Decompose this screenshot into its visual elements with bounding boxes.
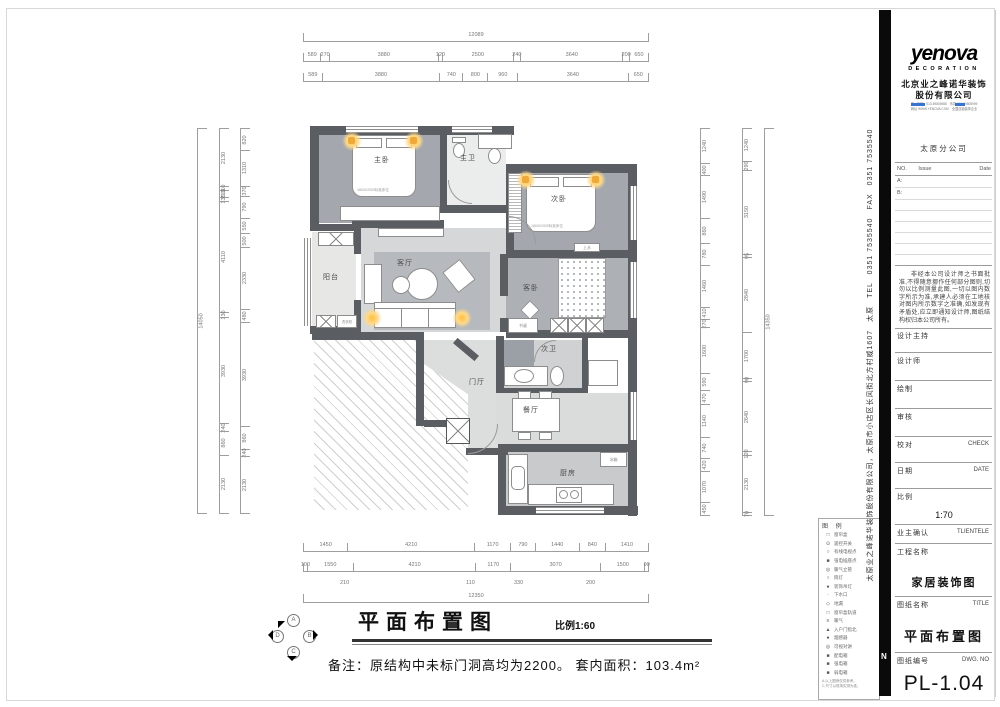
legend-item-label: 地漏 — [834, 601, 843, 607]
burner — [570, 490, 579, 499]
nightstand — [348, 137, 355, 144]
bath-cabinet — [478, 134, 512, 149]
nightstand — [410, 137, 417, 144]
dimension-segment: 780 — [701, 243, 710, 266]
chair — [539, 391, 552, 399]
wall — [312, 332, 424, 340]
wall — [496, 336, 504, 392]
dimension-segment: 270 — [320, 53, 329, 62]
fine-print-highlight — [911, 103, 925, 106]
dimension-value: 2840 — [743, 289, 749, 301]
dimension-value: 2130 — [743, 478, 749, 490]
sofa — [374, 302, 456, 328]
dimension-value: 420 — [702, 460, 708, 469]
field-client: 业主确认 — [897, 528, 929, 538]
dimension-value: 1070 — [701, 481, 707, 493]
dimension-segment: 1170 — [474, 543, 510, 552]
window — [304, 238, 311, 326]
master-wardrobe — [340, 206, 440, 221]
legend-symbol-icon: ◇ — [822, 601, 834, 607]
revision-row-b: B: — [897, 190, 991, 196]
dimension-value: 860 — [242, 433, 248, 442]
dimension-chain: 1240400149086078014604102701600590470114… — [700, 128, 710, 516]
legend-symbol-icon: ■ — [822, 670, 834, 676]
legend-item-label: 窗帘盒 — [834, 532, 848, 538]
room-label-guest: 客卧 — [523, 283, 539, 293]
dimension-value: 800 — [471, 72, 480, 78]
legend-symbol-icon: ○ — [822, 575, 834, 581]
dimension-segment: 410 — [701, 307, 710, 319]
chair — [539, 432, 552, 440]
sofa-divider — [401, 308, 402, 328]
wall — [440, 132, 447, 210]
dimension-value: 2500 — [472, 52, 484, 58]
room-label-master-bath: 主卫 — [460, 153, 476, 163]
dimension-segment: 370 — [241, 186, 250, 197]
wall — [500, 318, 508, 332]
dimension-segment: 450 — [701, 502, 710, 516]
room-label-kitchen: 厨房 — [560, 468, 576, 478]
legend-item-label: 配电箱 — [834, 653, 848, 659]
dimension-segment: 2640 — [743, 381, 752, 451]
legend-item-label: 遥控开关 — [834, 541, 852, 547]
dimension-segment: 240 — [241, 449, 250, 456]
field-sheet-name: 图纸名称 — [897, 600, 929, 610]
room-label-bed2: 次卧 — [551, 194, 567, 204]
window — [452, 126, 492, 133]
dimension-chain: 8201310370790550500233048039308602402130 — [240, 128, 250, 514]
legend-item-label: 窗帘盒轨道 — [834, 610, 857, 616]
dimension-value: 1500 — [617, 562, 629, 568]
dimension-segment: 790 — [510, 543, 535, 552]
nightstand — [522, 176, 529, 183]
title-block: yenova DECORATION 北京业之峰诺华装饰 股份有限公司 电（总机）… — [893, 10, 996, 697]
window — [630, 186, 637, 240]
dimension-value: 400 — [702, 165, 708, 174]
dimension-segment: 1310 — [241, 150, 250, 185]
field-dwg-no: 图纸编号 — [897, 656, 929, 666]
legend-symbol-icon: ● — [822, 584, 834, 590]
dimension-value: 790 — [242, 203, 248, 212]
dimension-value: 2130 — [241, 479, 247, 491]
field-sheet-en: TITLE — [973, 601, 989, 607]
title-block-black-bar — [879, 10, 891, 696]
field-designer: 设计师 — [897, 356, 921, 366]
legend-item-label: 暖气立管 — [834, 567, 852, 573]
tatami-platform — [558, 258, 606, 318]
dimension-segment: 860 — [701, 218, 710, 243]
dimension-segment: 14350 — [765, 128, 774, 516]
sofa-divider — [428, 308, 429, 328]
wall — [506, 250, 636, 258]
bath2-sink — [514, 369, 534, 383]
yenova-logo-sub: DECORATION — [893, 66, 995, 72]
dimension-segment: 740 — [701, 437, 710, 459]
dimension-segment: 589 — [303, 53, 320, 62]
legend-symbol-icon: ⊙ — [822, 541, 834, 547]
dimension-segment: 860 — [241, 426, 250, 449]
dimension-segment: 650 — [628, 73, 650, 82]
legend-notes: A.以上图例仅供参考。C.尺寸以现场实测为准。 — [822, 679, 876, 688]
dimension-segment: 12350 — [303, 594, 649, 603]
storage-cabinet — [550, 318, 568, 333]
dimension-value: 3880 — [375, 72, 387, 78]
legend-symbol-icon: □ — [822, 532, 834, 538]
legend-item-label: 暖气 — [834, 618, 843, 624]
dimension-value: 1550 — [324, 562, 336, 568]
legend-symbol-icon: ◎ — [822, 567, 834, 573]
dimension-segment: 1070 — [701, 471, 710, 502]
legend-item-label: 装饰吊灯 — [834, 584, 852, 590]
revision-row-a: A: — [897, 178, 991, 184]
field-date: 日期 — [897, 466, 913, 476]
dimension-segment: 4210 — [353, 563, 476, 572]
dimension-segment: 270 — [701, 319, 710, 327]
floor-lamp-glow — [362, 308, 382, 328]
dimension-segment: 500 — [241, 233, 250, 247]
legend-symbol-icon: ○ — [822, 549, 834, 555]
dining-table — [512, 398, 560, 432]
compass-arrow-east — [313, 630, 323, 640]
dimension-value: 70 — [744, 511, 750, 517]
dimension-value: 2130 — [220, 151, 226, 163]
dimension-value: 2330 — [241, 272, 247, 284]
dimension-chain: 58938807408009603640650 — [303, 73, 649, 82]
dimension-value: 650 — [634, 52, 643, 58]
sofa-backrest-line — [374, 308, 456, 309]
dimension-segment: 1550 — [307, 563, 353, 572]
legend-item-label: 弱电箱 — [834, 670, 848, 676]
dimension-value: 790 — [518, 542, 527, 548]
wall — [440, 205, 514, 213]
dimension-segment: 290 — [743, 161, 752, 170]
wall — [498, 450, 506, 512]
shower-area — [504, 340, 534, 366]
dimension-value: 2640 — [743, 411, 749, 423]
project-name: 家居装饰图 — [893, 574, 995, 590]
dimension-segment: 1410 — [605, 543, 649, 552]
dimension-segment: 2840 — [743, 257, 752, 332]
dimension-value: 3150 — [743, 206, 749, 218]
rev-date: Date — [979, 166, 991, 172]
dimension-segment: 4110 — [220, 201, 229, 312]
legend-item: ■强电箱 — [822, 660, 876, 669]
legend-item-label: 筒灯 — [834, 575, 843, 581]
storage-cabinet — [568, 318, 586, 333]
dimension-value: 370 — [242, 187, 248, 196]
company-side-text: 太原业之峰诺华装饰股份有限公司，太原市小店区长风街北方村威1607 太原 TEL… — [865, 55, 875, 655]
tv-cabinet — [378, 228, 444, 237]
dimension-value: 1240 — [743, 139, 749, 151]
kitchen-sink — [511, 466, 525, 490]
dimension-value: 12350 — [468, 593, 483, 599]
dimension-chain: 12089 — [303, 33, 649, 42]
dimension-segment: 12089 — [303, 33, 649, 42]
dimension-value: 3930 — [241, 368, 247, 380]
dimension-callout: 200 — [586, 580, 595, 586]
dimension-segment: 960 — [487, 73, 517, 82]
dimension-segment: 2130 — [241, 456, 250, 514]
dimension-callout: 110 — [466, 580, 475, 586]
dimension-segment: 3880 — [322, 73, 439, 82]
balcony-cabinet — [318, 232, 354, 246]
dimension-segment: 1140 — [701, 404, 710, 437]
dimension-value: 1170 — [487, 542, 499, 548]
dimension-value: 1450 — [320, 542, 332, 548]
closet-washer — [588, 360, 618, 386]
dimension-value: 1460 — [701, 280, 707, 292]
window — [536, 507, 604, 514]
wall — [310, 126, 319, 230]
dimension-chain: 14504210117079014408401410 — [303, 543, 649, 552]
dimension-value: 650 — [634, 72, 643, 78]
dimension-value: 1410 — [621, 542, 633, 548]
wall — [354, 226, 361, 254]
dimension-value: 90 — [644, 562, 650, 568]
legend-item: ■弱电箱 — [822, 669, 876, 678]
dimension-segment: 14050 — [198, 128, 207, 514]
dimension-segment: 550 — [241, 218, 250, 233]
dimension-value: 12089 — [468, 32, 483, 38]
drawing-scale: 比例1:60 — [555, 617, 595, 632]
legend-symbol-icon: ■ — [822, 558, 834, 564]
dimension-segment: 1700 — [743, 332, 752, 378]
dimension-segment: 589 — [303, 73, 322, 82]
field-scale: 比例 — [897, 492, 913, 502]
dimension-chain: 14350 — [764, 128, 774, 516]
legend-item-label: 下水口 — [834, 592, 848, 598]
dimension-segment: 800 — [462, 73, 487, 82]
room-label-balcony: 阳台 — [323, 272, 339, 282]
burner — [559, 490, 568, 499]
dimension-segment: 2130 — [743, 455, 752, 512]
dimension-value: 1700 — [743, 349, 749, 361]
coffee-table-small — [392, 276, 410, 294]
chair — [518, 391, 531, 399]
washer-label-box: 洗衣机 — [337, 315, 357, 328]
fine-print-highlight — [955, 103, 965, 106]
dimension-value: 960 — [498, 72, 507, 78]
dimension-value: 4210 — [405, 542, 417, 548]
dimension-value: 4110 — [220, 251, 226, 263]
yenova-logo: yenova — [893, 42, 995, 66]
dimension-segment: 1170 — [475, 563, 510, 572]
dimension-segment: 1240 — [743, 128, 752, 161]
compass-arrow-west — [263, 630, 273, 640]
drawing-number: PL-1.04 — [893, 672, 995, 696]
dimension-segment: 3150 — [743, 170, 752, 253]
dimension-chain: 589270388012025002403640200650 — [303, 53, 649, 62]
distribution-box — [446, 418, 470, 444]
dimension-value: 1310 — [241, 162, 247, 174]
field-check: 校对 — [897, 440, 913, 450]
legend-symbol-icon: ▲ — [822, 627, 834, 633]
dimension-value: 590 — [702, 377, 708, 386]
field-dwg-en: DWG. NO — [962, 657, 989, 663]
dimension-value: 550 — [242, 221, 248, 230]
dimension-value: 410 — [702, 309, 708, 318]
sheet-name: 平面布置图 — [893, 626, 995, 645]
legend-note-line: C.尺寸以现场实测为准。 — [822, 684, 876, 689]
dimension-value: 589 — [308, 72, 317, 78]
legend-symbol-icon: ■ — [822, 653, 834, 659]
drawing-note: 备注：原结构中未标门洞高均为2200。 套内面积：103.4m² — [328, 655, 700, 674]
dimension-segment: 3640 — [520, 53, 622, 62]
room-label-dining: 餐厅 — [523, 405, 539, 415]
dimension-segment: 2330 — [241, 247, 250, 309]
dimension-value: 740 — [447, 72, 456, 78]
dimension-segment: 3070 — [510, 563, 600, 572]
wall — [498, 444, 636, 452]
field-project: 工程名称 — [897, 547, 929, 557]
desk: 书桌 — [508, 318, 538, 333]
dimension-value: 500 — [242, 236, 248, 245]
wall — [500, 254, 508, 296]
dimension-segment: 790 — [241, 196, 250, 218]
compass-arrow-south — [287, 656, 297, 666]
bar-logo-mark: N — [881, 652, 889, 662]
bath2-toilet — [550, 366, 564, 386]
compass-a: A — [287, 614, 300, 627]
dimension-segment: 1460 — [701, 265, 710, 306]
field-design-lead: 设计主持 — [897, 331, 929, 341]
dimension-value: 2130 — [220, 478, 226, 490]
dimension-value: 589 — [308, 52, 317, 58]
dimension-segment: 3880 — [329, 53, 438, 62]
title-rule-thin — [352, 644, 712, 645]
dimension-value: 780 — [702, 250, 708, 259]
dimension-segment: 3930 — [241, 322, 250, 425]
dimension-segment: 240 — [513, 53, 521, 62]
wall — [416, 340, 424, 426]
legend-item-label: 强电箱 — [834, 661, 848, 667]
dimension-segment: 1440 — [535, 543, 579, 552]
dimension-value: 470 — [702, 393, 708, 402]
dimension-segment: 2130 — [220, 455, 229, 514]
dimension-callout: 330 — [514, 580, 523, 586]
dimension-segment: 420 — [701, 458, 710, 471]
room-label-bath2: 次卫 — [541, 344, 557, 354]
dimension-segment: 1240 — [701, 128, 710, 163]
fridge: 冰箱 — [600, 452, 627, 467]
dimension-value: 3930 — [220, 365, 226, 377]
dimension-value: 4210 — [408, 562, 420, 568]
company-fine-print-2: 网址 WWW.YENOVA.COM 全国连锁装饰企业 — [898, 107, 990, 112]
dimension-value: 840 — [588, 542, 597, 548]
dimension-value: 3070 — [550, 562, 562, 568]
compass-arrow-nw — [271, 614, 285, 628]
dimension-chain: 14050 — [197, 128, 207, 514]
dimension-value: 860 — [221, 439, 227, 448]
field-date-en: DATE — [973, 467, 989, 473]
dimension-segment: 90 — [644, 563, 649, 572]
dimension-segment: 820 — [241, 128, 250, 150]
dimension-segment: 860 — [220, 431, 229, 455]
rev-issue: Issue — [918, 166, 931, 172]
dimension-value: 1440 — [551, 542, 563, 548]
legend-item-label: 强电插座点 — [834, 558, 857, 564]
dimension-segment: 480 — [241, 309, 250, 323]
rev-no: NO. — [897, 166, 907, 172]
dimension-segment: 3640 — [517, 73, 627, 82]
dimension-value: 3640 — [566, 52, 578, 58]
dimension-segment: 1500 — [600, 563, 644, 572]
wall — [352, 220, 444, 228]
title-rule-thick — [352, 639, 712, 642]
dimension-chain: 2130110210130411013039302408602130 — [219, 128, 229, 514]
legend-item-label: 烟感器 — [834, 635, 848, 641]
dimension-callout: 210 — [340, 580, 349, 586]
branch-name: 太原分公司 — [893, 143, 995, 154]
field-check-en: CHECK — [968, 441, 989, 447]
drawing-title: 平面布置图 — [358, 606, 498, 636]
legend-symbol-icon: ◎ — [822, 644, 834, 650]
field-draft: 绘制 — [897, 384, 913, 394]
room-label-master: 主卧 — [374, 155, 390, 165]
dimension-value: 14350 — [765, 314, 771, 329]
dimension-value: 1140 — [701, 415, 707, 427]
dimension-value: 3880 — [378, 52, 390, 58]
dimension-segment: 650 — [629, 53, 649, 62]
dimension-chain: 124029031509528401700902640120213070 — [742, 128, 752, 516]
dimension-value: 1490 — [701, 191, 707, 203]
dimension-value: 1170 — [487, 562, 499, 568]
dimension-segment: 840 — [579, 543, 605, 552]
legend-symbol-icon: ≡ — [822, 618, 834, 624]
dimension-segment: 400 — [701, 163, 710, 175]
room-label-living: 客厅 — [397, 258, 413, 268]
bed-size-label: 1800X2000标准床位 — [531, 224, 563, 229]
floor-lamp-glow — [452, 308, 472, 328]
bed-size-label: 1800X2000标准床位 — [357, 188, 389, 193]
legend-symbol-icon: · — [822, 592, 834, 598]
legend-item-label: 有线电视点 — [834, 549, 857, 555]
dimension-segment: 1450 — [303, 543, 347, 552]
dimension-segment: 4210 — [347, 543, 474, 552]
chair — [518, 432, 531, 440]
legend-item-label: 可视对讲 — [834, 644, 852, 650]
legend-item-label: 入户门指北 — [834, 627, 857, 633]
dimension-segment: 470 — [701, 390, 710, 404]
scale-value: 1:70 — [893, 510, 995, 520]
dimension-value: 14050 — [198, 313, 204, 328]
dimension-value: 3640 — [567, 72, 579, 78]
dimension-segment: 70 — [743, 512, 752, 516]
disclaimer-text: 非经本公司设计师之书面批准,不得随意挪作任何部分图则,切勿以比例测量此图,一切以… — [899, 272, 990, 325]
dimension-value: 480 — [242, 312, 248, 321]
wall — [424, 420, 446, 427]
dimension-value: 1600 — [701, 344, 707, 356]
legend-symbol-icon: ● — [822, 635, 834, 641]
dimension-value: 450 — [702, 504, 708, 513]
dimension-value: 820 — [242, 135, 248, 144]
room-label-foyer: 门厅 — [469, 377, 485, 387]
sink — [488, 148, 501, 164]
dimension-value: 740 — [702, 443, 708, 452]
coffee-table-large — [406, 268, 438, 300]
dimension-segment: 2500 — [442, 53, 512, 62]
dimension-segment: 3930 — [220, 317, 229, 423]
dimension-value: 1240 — [701, 140, 707, 152]
side-table — [364, 264, 382, 304]
nightstand — [592, 176, 599, 183]
floor-plan-sheet: 1800X2000标准床位 1800X2000标准床位 上水 书桌 — [0, 0, 1000, 707]
company-name-line2: 股份有限公司 — [893, 89, 995, 101]
dimension-segment: 240 — [220, 423, 229, 430]
storage-cabinet — [586, 318, 604, 333]
legend-symbol-icon: □ — [822, 610, 834, 616]
dimension-segment: 2130 — [220, 128, 229, 186]
